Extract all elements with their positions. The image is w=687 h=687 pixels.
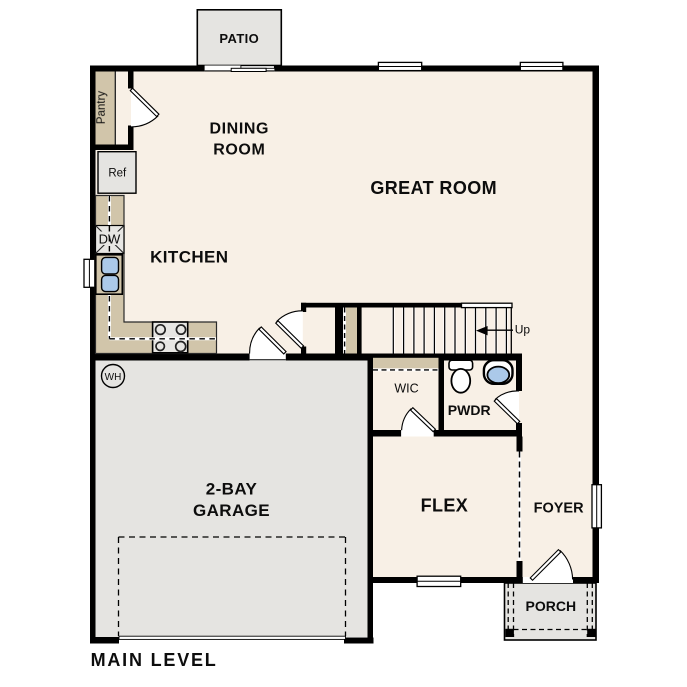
svg-text:FLEX: FLEX — [421, 495, 469, 515]
svg-text:MAIN LEVEL: MAIN LEVEL — [91, 650, 218, 670]
svg-text:PATIO: PATIO — [219, 31, 259, 46]
svg-text:Ref: Ref — [108, 168, 127, 180]
svg-text:PWDR: PWDR — [448, 402, 491, 418]
svg-text:ROOM: ROOM — [213, 141, 265, 158]
svg-text:KITCHEN: KITCHEN — [150, 247, 228, 266]
svg-text:GREAT ROOM: GREAT ROOM — [370, 178, 497, 198]
svg-text:WIC: WIC — [394, 382, 418, 396]
svg-text:FOYER: FOYER — [534, 501, 584, 517]
svg-text:GARAGE: GARAGE — [193, 501, 270, 520]
svg-text:PORCH: PORCH — [526, 598, 577, 614]
svg-text:DW: DW — [99, 231, 121, 246]
svg-text:2-BAY: 2-BAY — [206, 480, 258, 499]
svg-text:Up: Up — [515, 323, 531, 337]
svg-text:Pantry: Pantry — [96, 91, 108, 124]
svg-text:WH: WH — [105, 372, 122, 383]
svg-text:DINING: DINING — [209, 121, 269, 138]
